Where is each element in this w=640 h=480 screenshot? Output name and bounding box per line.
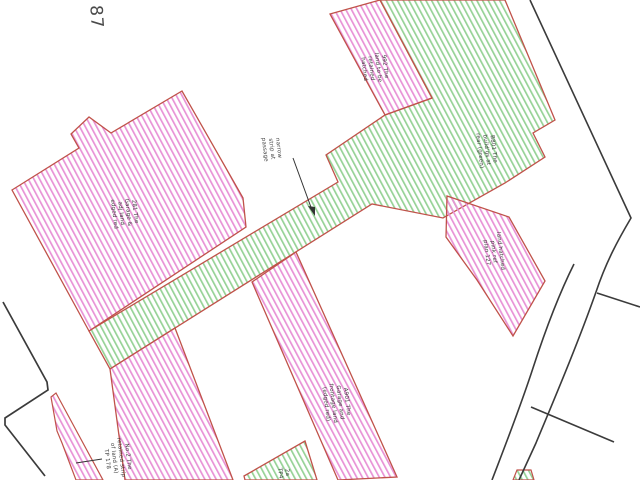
parcel-bottom-centre-pink-strip	[252, 252, 397, 480]
annotation-top-pink-strip: 992 The land to be retained hatched	[359, 52, 390, 85]
parcel-bottom-left-sliver	[51, 393, 103, 480]
leader-arrow-line	[293, 158, 312, 210]
road-outer-line	[519, 0, 631, 480]
annotation-bottom-green: 2a TP4	[276, 467, 291, 479]
annotation-top-right-green: B801 The build'gs at rear (green)	[474, 131, 499, 169]
annotation-passage-strip: narrow strip at passage	[259, 136, 282, 163]
plot-number: 87	[85, 5, 107, 30]
boundary-zigzag-left	[3, 302, 48, 476]
road-spur-upper	[597, 293, 640, 307]
title-plan: 87 281 The Garage & adj land edged red n…	[0, 0, 640, 480]
annotation-bottom-pink-strip: A901 The Garage and frontage land (edged…	[320, 382, 352, 425]
annotation-large-pink-parcel: 281 The Garage & adj land edged red	[109, 197, 140, 230]
annotation-bottom-left-sliver: No.2 The retained strip of land (A) TP 1…	[101, 437, 133, 480]
plan-canvas	[0, 0, 640, 480]
